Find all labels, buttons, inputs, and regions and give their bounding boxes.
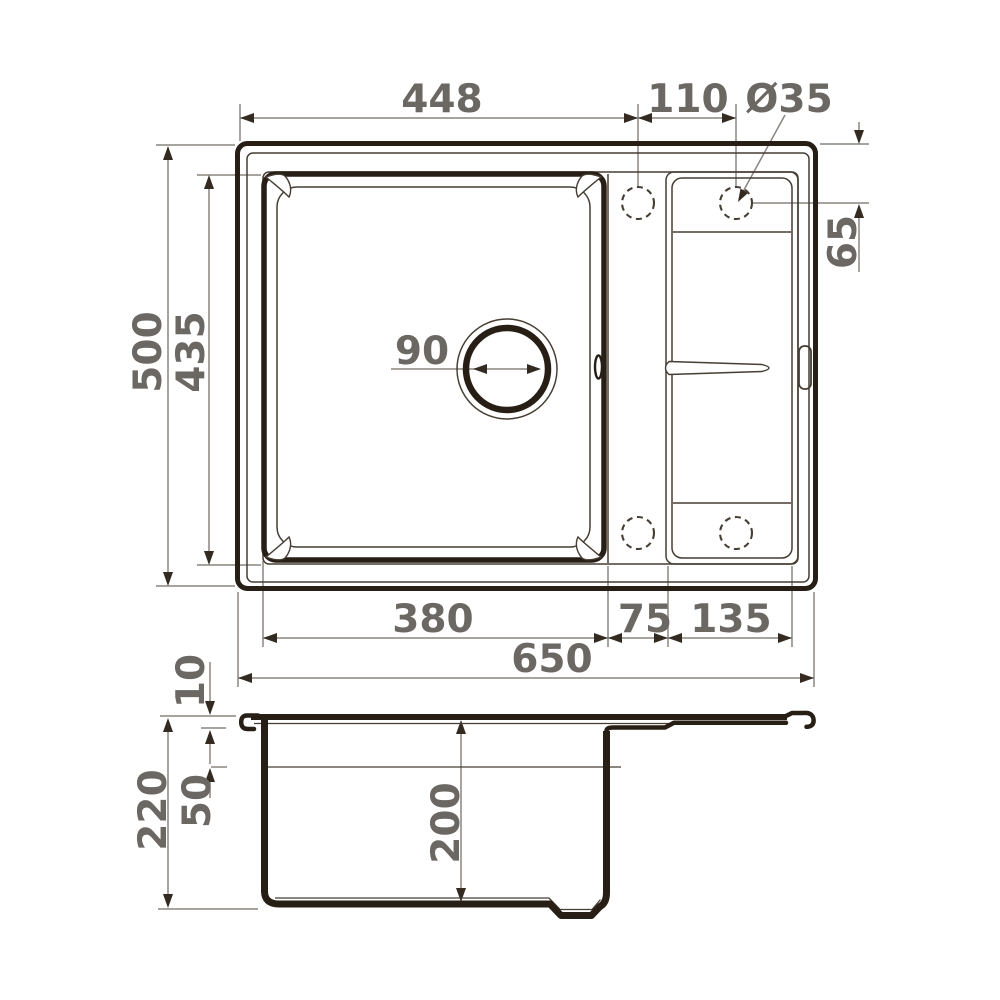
dim-label-10: 10	[169, 654, 214, 708]
arrow-500-bottom	[163, 572, 173, 586]
dim-hole-diameter: Ø35	[738, 77, 833, 202]
bowl-corner-fold-tl	[266, 174, 291, 197]
flange-right-end	[785, 713, 814, 727]
tap-hole-bottom-right	[720, 517, 752, 549]
dim-380-75-135: 380 75 135	[263, 561, 792, 647]
arrow-200-top	[456, 720, 466, 734]
arrow-220-top	[163, 718, 173, 732]
dim-label-50: 50	[175, 774, 220, 828]
arrow-435-top	[204, 175, 214, 189]
dim-label-220: 220	[131, 769, 176, 850]
dim-label-90: 90	[395, 329, 449, 374]
dim-200: 200	[424, 720, 469, 902]
tap-hole-top-right	[720, 187, 752, 219]
dim-label-500: 500	[126, 311, 171, 392]
dim-label-65: 65	[821, 215, 866, 269]
flange-left-curl	[241, 716, 258, 730]
arrow-65-top	[854, 130, 864, 144]
drainboard-groove	[666, 362, 770, 375]
dim-448-110: 448 110	[240, 77, 736, 186]
dim-label-380: 380	[392, 597, 473, 642]
bowl-corner-fold-br	[576, 537, 601, 560]
arrow-90-right	[527, 364, 541, 374]
tap-hole-top-left	[622, 187, 654, 219]
arrow-650-right	[800, 673, 814, 683]
arrow-220-bottom	[163, 894, 173, 908]
tap-hole-bottom-left	[622, 517, 654, 549]
arrow-500-top	[163, 146, 173, 160]
dim-label-135: 135	[690, 597, 771, 642]
dim-label-435: 435	[169, 311, 214, 392]
dim-label-650: 650	[511, 637, 592, 682]
section-view	[241, 713, 813, 916]
arrow-200-bottom	[456, 888, 466, 902]
drawing-canvas: 448 110 Ø35 65 500	[0, 0, 1000, 1000]
arrow-380-right	[594, 633, 608, 643]
leader-line-d35	[739, 115, 785, 199]
arrow-650-left	[238, 673, 252, 683]
arrow-448-left	[240, 113, 254, 123]
dim-label-448: 448	[401, 77, 482, 122]
arrow-135-right	[778, 633, 792, 643]
bowl-corner-fold-tr	[576, 174, 601, 197]
arrow-435-bottom	[204, 551, 214, 565]
dim-label-110: 110	[647, 77, 728, 122]
bowl-overflow-hole	[595, 356, 602, 379]
dim-label-200: 200	[424, 782, 469, 863]
bowl-corner-fold-bl	[266, 537, 291, 560]
dim-label-d35: Ø35	[745, 77, 832, 122]
top-view	[238, 144, 816, 589]
arrow-448-right	[624, 113, 638, 123]
arrow-90-left	[473, 364, 487, 374]
dim-label-75: 75	[618, 597, 672, 642]
arrow-380-left	[263, 633, 277, 643]
arrow-10-bottom	[205, 730, 215, 744]
sink-technical-drawing: 448 110 Ø35 65 500	[0, 0, 1000, 1000]
